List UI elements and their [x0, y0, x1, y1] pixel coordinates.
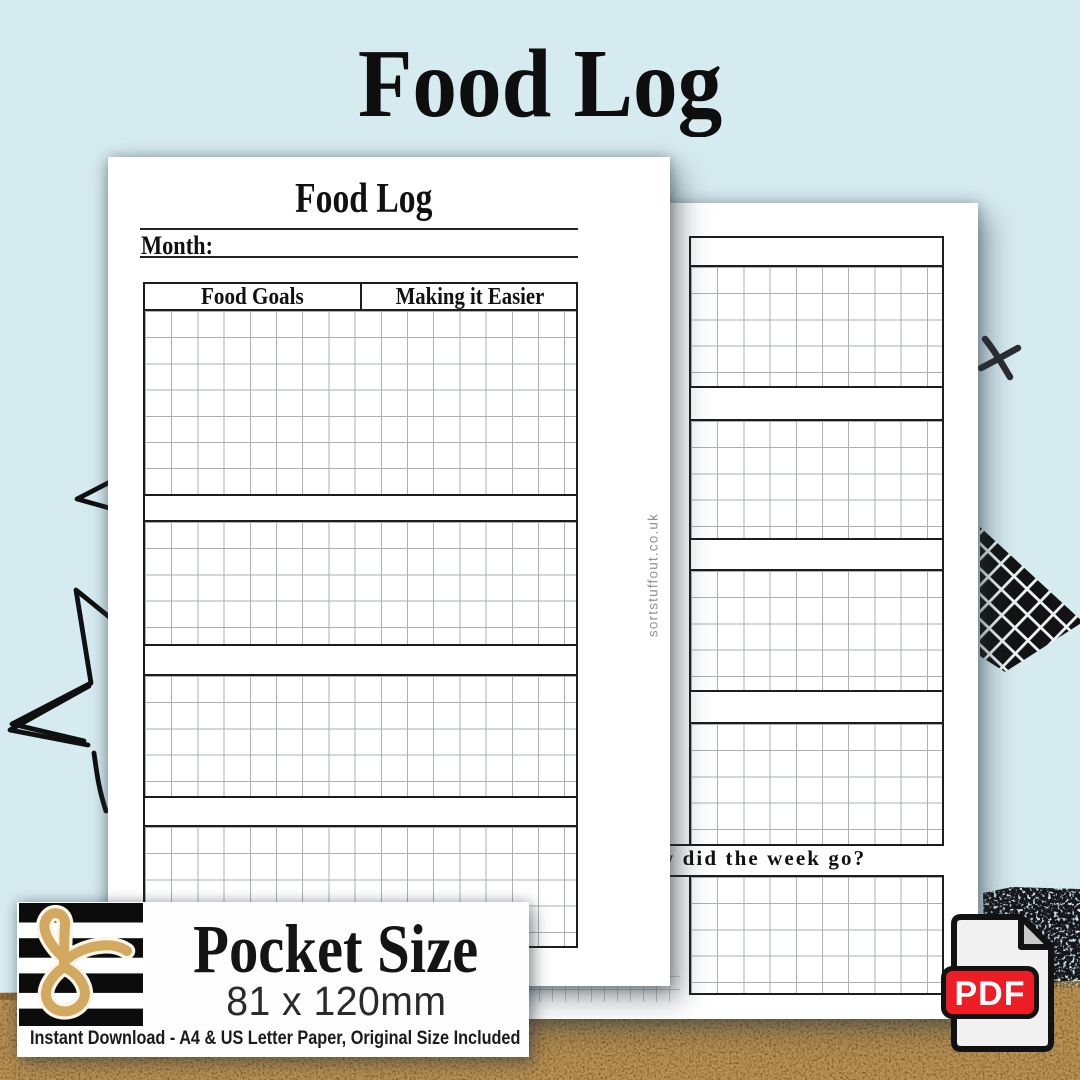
- svg-text:PDF: PDF: [955, 975, 1026, 1013]
